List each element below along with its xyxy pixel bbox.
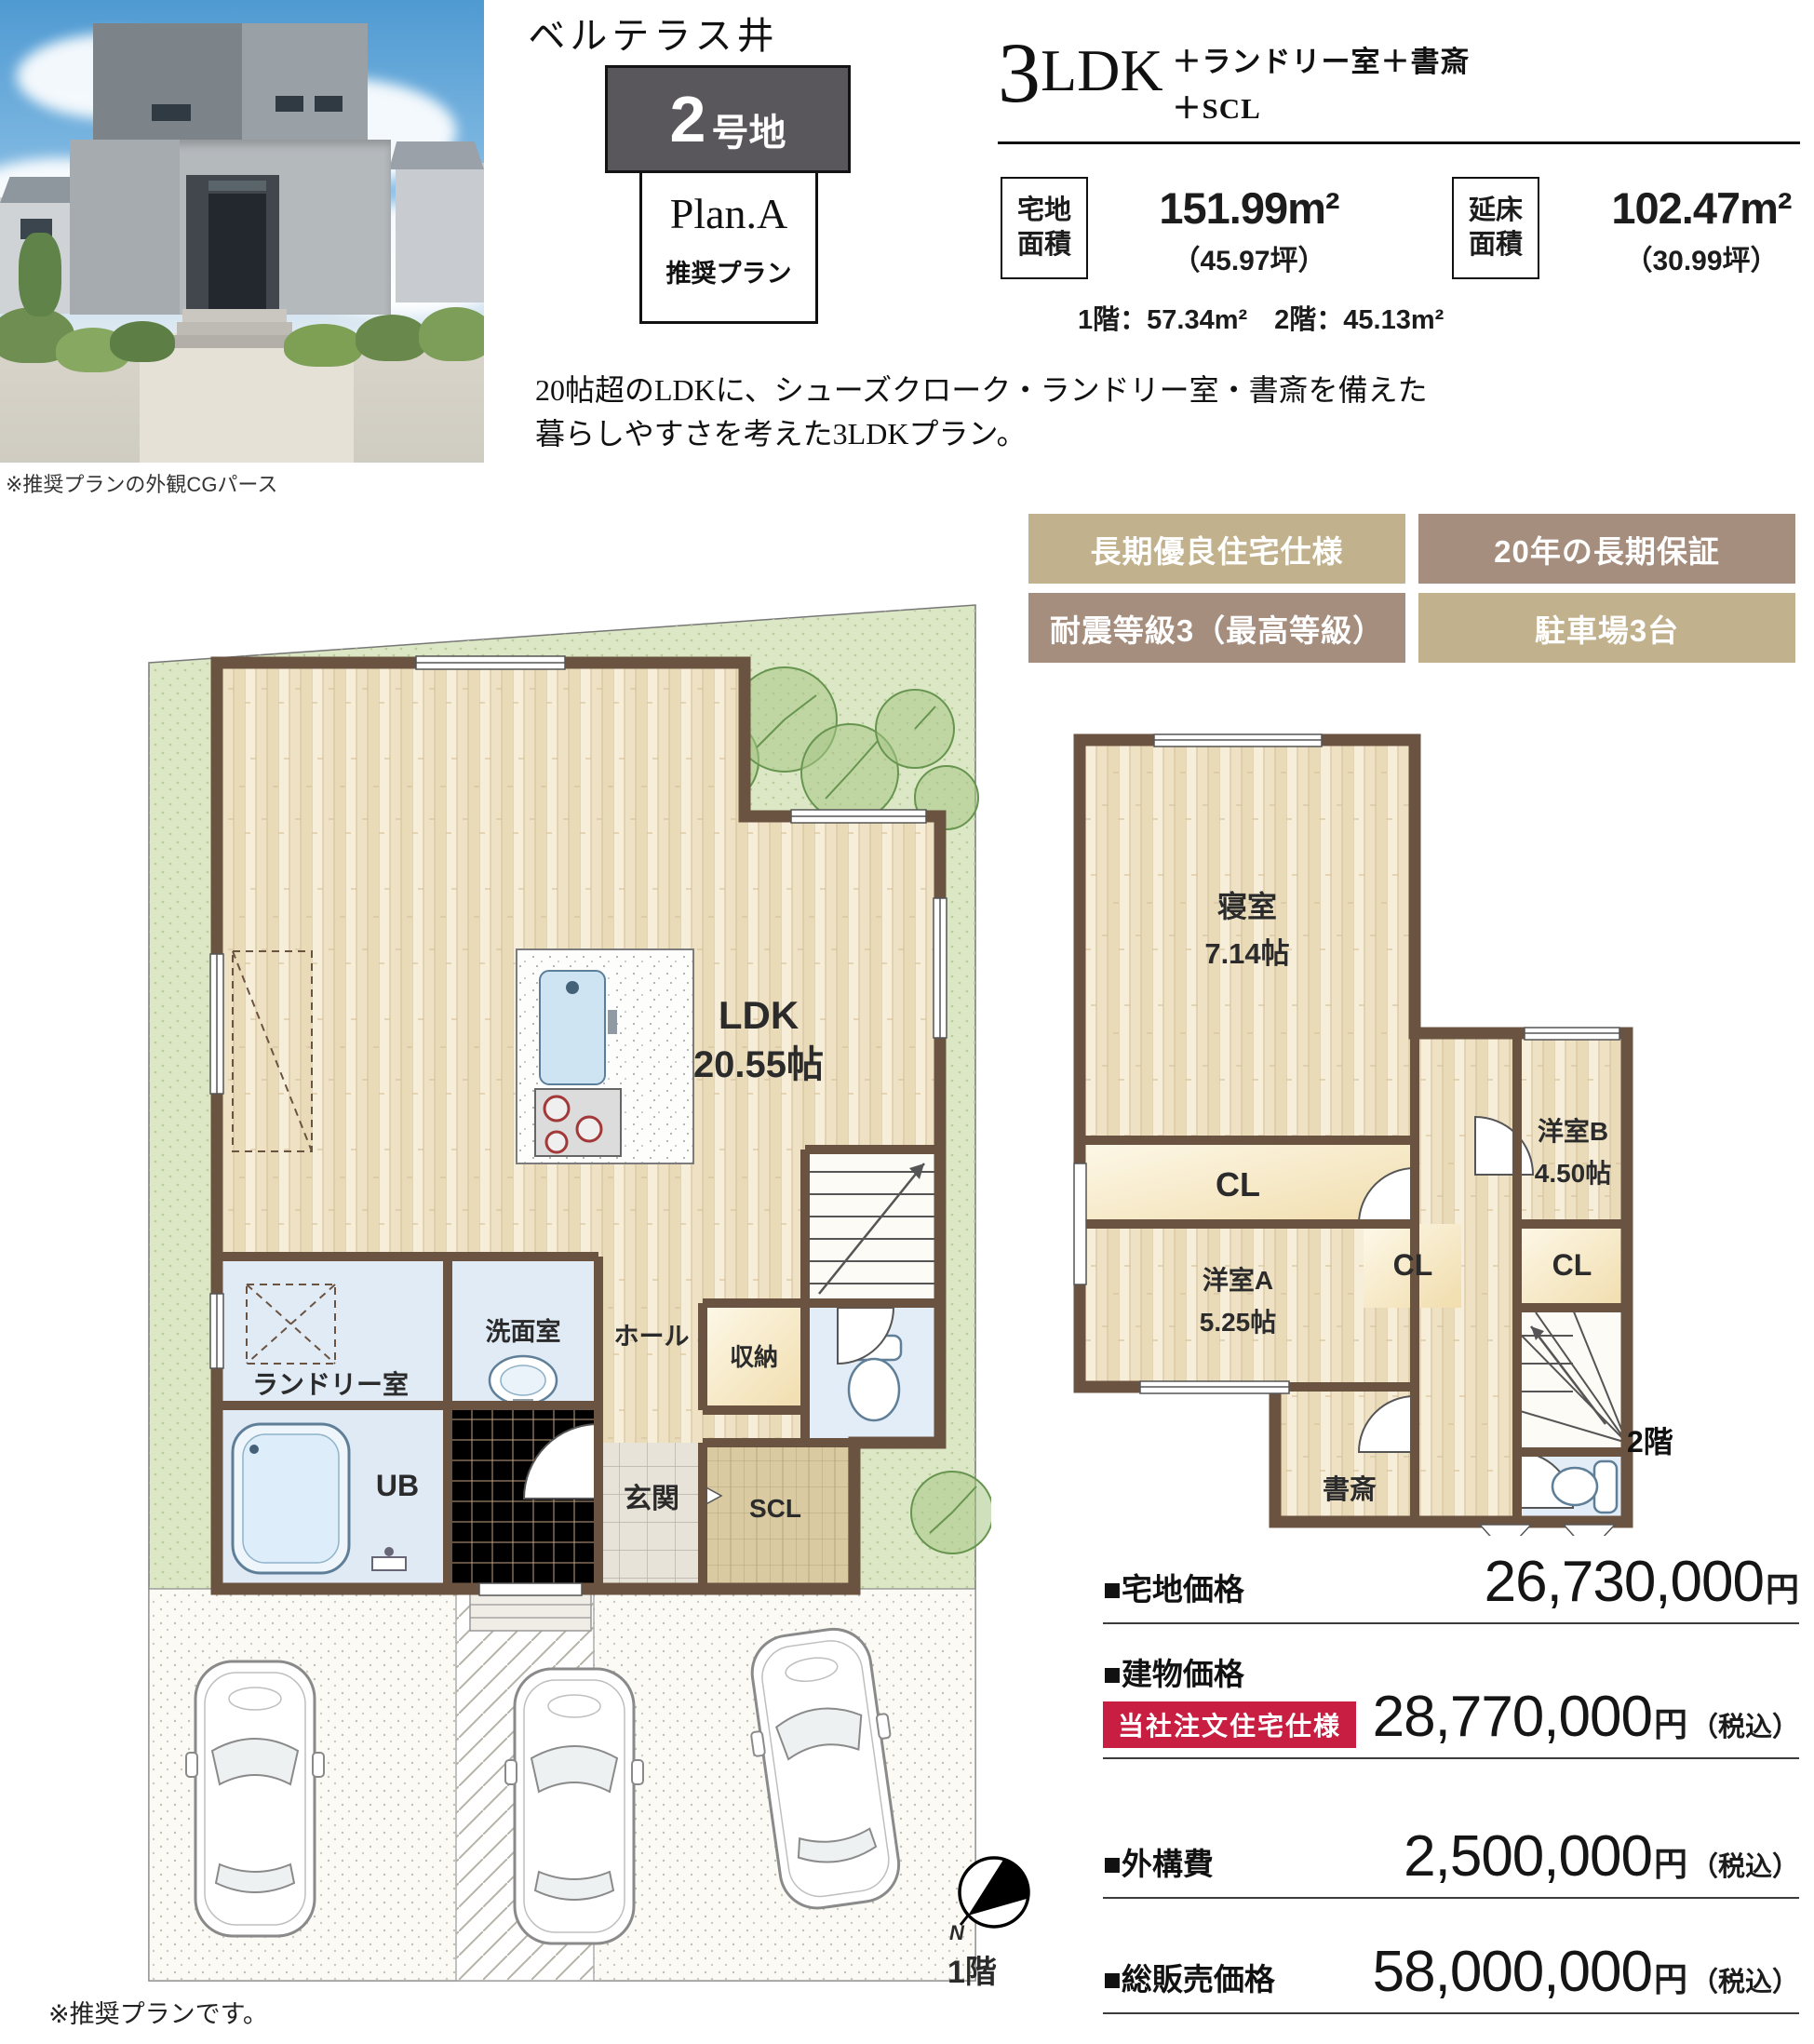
description-line1: 20帖超のLDKに、シューズクローク・ランドリー室・書斎を備えた	[535, 369, 1801, 412]
floor-area-sqm: 102.47m²	[1534, 182, 1814, 234]
price-label-total: ■総販売価格	[1103, 1955, 1275, 2005]
price-tax-note: （税込）	[1691, 1705, 1799, 1744]
door-transom-window	[208, 181, 266, 191]
lot-number: 2	[670, 87, 706, 152]
divider-rule	[998, 141, 1800, 144]
shrub	[110, 321, 175, 362]
price-unit: 円	[1654, 1698, 1687, 1746]
entrance-porch-steps	[470, 1592, 591, 1631]
porch-step	[182, 309, 287, 322]
price-row-building: ■建物価格 当社注文住宅仕様 28,770,000 円 （税込）	[1103, 1640, 1799, 1759]
washbasin	[490, 1356, 557, 1406]
floor2-tag: 2階	[1627, 1419, 1673, 1461]
upper-window	[275, 96, 303, 112]
main-house-lower-left	[70, 140, 180, 315]
neighbor-roof	[389, 141, 484, 169]
lot-number-badge: 2 号地	[605, 65, 851, 173]
lot-suffix: 号地	[711, 82, 786, 156]
ldk-label: LDK	[719, 993, 799, 1037]
closet3-label: CL	[1393, 1248, 1433, 1282]
neighbor-house	[396, 163, 484, 303]
parked-car-1	[186, 1661, 324, 1936]
price-number: 26,730,000	[1485, 1549, 1764, 1615]
tree	[19, 233, 61, 316]
western-b-label: 洋室B	[1538, 1116, 1608, 1146]
porch-step	[171, 335, 298, 348]
compass-icon: N	[949, 1858, 1028, 1944]
porch-step	[177, 322, 292, 335]
entrance-tile	[598, 1443, 703, 1589]
feature-badge-seismic: 耐震等級3（最高等級）	[1028, 593, 1405, 663]
kitchen-stove	[535, 1089, 621, 1156]
scl-label: SCL	[749, 1494, 801, 1523]
feature-badge-warranty: 20年の長期保証	[1418, 514, 1795, 584]
bathtub	[233, 1424, 349, 1573]
layout-extras: ＋ランドリー室＋書斎 ＋SCL	[1173, 39, 1471, 132]
western-a-size-label: 5.25帖	[1200, 1308, 1277, 1337]
western-a-label: 洋室A	[1203, 1265, 1273, 1295]
bedroom-label: 寝室	[1217, 890, 1277, 923]
shrub	[419, 307, 484, 361]
price-value-land: 26,730,000 円	[1485, 1549, 1799, 1615]
study-label: 書斎	[1323, 1473, 1377, 1505]
price-number: 2,500,000	[1404, 1823, 1652, 1889]
plan-box: Plan.A 推奨プラン	[639, 166, 818, 324]
laundry-label: ランドリー室	[252, 1369, 409, 1399]
plan-type: 推奨プラン	[666, 253, 792, 289]
closet1-label: CL	[1216, 1165, 1260, 1204]
price-unit: 円	[1654, 1837, 1687, 1886]
price-label-exterior: ■外構費	[1103, 1839, 1214, 1889]
shrub	[284, 324, 363, 367]
price-label-building: ■建物価格	[1103, 1649, 1356, 1694]
custom-home-badge: 当社注文住宅仕様	[1103, 1701, 1356, 1748]
description-line2: 暮らしやすさを考えた3LDKプラン。	[535, 412, 1801, 456]
price-value-building: 28,770,000 円 （税込）	[1373, 1684, 1799, 1750]
floors-breakdown: 1階：57.34m² 2階：45.13m²	[1078, 298, 1444, 337]
footnote: ※推奨プランです。	[48, 1994, 268, 2030]
bedroom-size-label: 7.14帖	[1204, 937, 1289, 970]
kitchen-island	[517, 949, 693, 1163]
layout-extras-line2: ＋SCL	[1173, 86, 1471, 132]
compass-block: N 1階	[921, 1850, 1070, 1999]
garden-tree-small	[911, 1472, 991, 1553]
washroom-label: 洗面室	[486, 1317, 561, 1346]
layout-heading: 3 LDK ＋ランドリー室＋書斎 ＋SCL	[998, 26, 1471, 132]
upper-window	[152, 104, 191, 121]
land-area-value: 151.99m² （45.97坪）	[1082, 182, 1417, 278]
kitchen-faucet	[566, 981, 579, 994]
shrub	[356, 315, 428, 361]
price-row-total: ■総販売価格 58,000,000 円 （税込）	[1103, 1901, 1799, 2014]
photo-caption: ※推奨プランの外観CGパース	[6, 468, 277, 498]
price-value-total: 58,000,000 円 （税込）	[1373, 1939, 1799, 2005]
storage-label: 収納	[730, 1343, 778, 1371]
flyer-page: ※推奨プランの外観CGパース ベルテラス井堀 2 号地 Plan.A 推奨プラン…	[0, 0, 1814, 2044]
entrance-label: 玄関	[624, 1483, 679, 1514]
price-row-land: ■宅地価格 26,730,000 円	[1103, 1534, 1799, 1624]
layout-extras-line1: ＋ランドリー室＋書斎	[1173, 39, 1471, 86]
bath-label: UB	[376, 1469, 419, 1502]
land-area-label: 宅地面積	[1001, 177, 1088, 279]
closet2-label: CL	[1552, 1248, 1592, 1282]
house-photo	[0, 0, 484, 463]
floor2-plan: 寝室 7.14帖 CL 洋室B 4.50帖 洋室A 5.25帖 CL CL 書斎	[1052, 717, 1685, 1536]
floor1-plan: LDK 20.55帖 ランドリー室 洗面室 ホール 収納 UB 玄関 SCL	[144, 600, 991, 1987]
layout-count: 3	[998, 26, 1041, 119]
land-area-sqm: 151.99m²	[1082, 182, 1417, 234]
price-unit: 円	[1654, 1953, 1687, 2001]
ldk-size-label: 20.55帖	[693, 1044, 824, 1085]
land-area-tsubo: （45.97坪）	[1082, 237, 1417, 278]
floor-area-tsubo: （30.99坪）	[1534, 237, 1814, 278]
price-value-exterior: 2,500,000 円 （税込）	[1404, 1823, 1799, 1889]
price-tax-note: （税込）	[1691, 1960, 1799, 1999]
floor1-tag: 1階	[947, 1955, 997, 1990]
floor-area-label: 延床面積	[1452, 177, 1539, 279]
price-number: 28,770,000	[1373, 1684, 1652, 1750]
price-label-land: ■宅地価格	[1103, 1565, 1244, 1615]
price-number: 58,000,000	[1373, 1939, 1652, 2005]
floor-area-value: 102.47m² （30.99坪）	[1534, 182, 1814, 278]
price-tax-note: （税込）	[1691, 1845, 1799, 1884]
price-label-building-group: ■建物価格 当社注文住宅仕様	[1103, 1649, 1356, 1750]
feature-badge-long-term-quality: 長期優良住宅仕様	[1028, 514, 1405, 584]
compass-north-label: N	[949, 1921, 965, 1944]
feature-badge-parking: 駐車場3台	[1418, 593, 1795, 663]
plan-name: Plan.A	[670, 189, 788, 238]
hall-label: ホール	[614, 1323, 690, 1351]
parked-car-2	[505, 1669, 643, 1943]
feature-badges: 長期優良住宅仕様 20年の長期保証 耐震等級3（最高等級） 駐車場3台	[1028, 514, 1799, 663]
layout-ldk: LDK	[1041, 26, 1163, 115]
price-unit: 円	[1766, 1563, 1799, 1611]
plan-description: 20帖超のLDKに、シューズクローク・ランドリー室・書斎を備えた 暮らしやすさを…	[535, 369, 1801, 456]
price-row-exterior: ■外構費 2,500,000 円 （税込）	[1103, 1783, 1799, 1899]
western-b-size-label: 4.50帖	[1535, 1159, 1612, 1188]
entrance-door	[208, 194, 266, 313]
upper-window	[315, 96, 343, 112]
